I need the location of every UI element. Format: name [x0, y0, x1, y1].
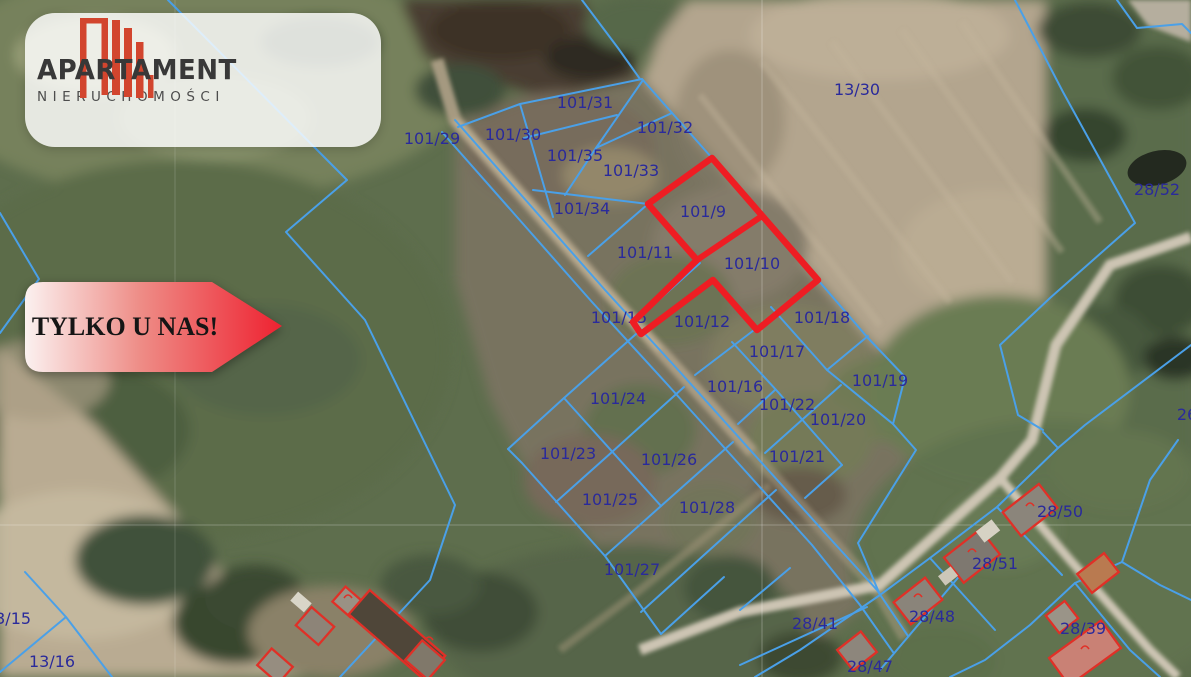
parcel-label: 101/28 — [679, 499, 735, 517]
parcel-label: 101/11 — [617, 244, 673, 262]
parcel-label: 28/51 — [972, 555, 1018, 573]
parcel-label: 101/25 — [582, 491, 638, 509]
parcel-label: 101/9 — [680, 203, 726, 221]
parcel-label: 101/29 — [404, 130, 460, 148]
parcel-label: 101/33 — [603, 162, 659, 180]
parcel-label: 101/24 — [590, 390, 646, 408]
ribbon-text: TYLKO U NAS! — [25, 282, 225, 372]
parcel-label: 101/26 — [641, 451, 697, 469]
parcel-label: 13/15 — [0, 610, 31, 628]
parcel-label: 101/20 — [810, 411, 866, 429]
parcel-label: 101/21 — [769, 448, 825, 466]
exclusive-ribbon: TYLKO U NAS! — [25, 282, 287, 372]
parcel-label: 13/16 — [29, 653, 75, 671]
parcel-label: 101/15 — [591, 309, 647, 327]
parcel-label: 101/22 — [759, 396, 815, 414]
parcel-label: 101/17 — [749, 343, 805, 361]
parcel-label: 101/31 — [557, 94, 613, 112]
parcel-label: 28/47 — [847, 658, 893, 676]
parcel-label: 101/27 — [604, 561, 660, 579]
parcel-label: 101/23 — [540, 445, 596, 463]
parcel-label: 28/52 — [1134, 181, 1180, 199]
parcel-label: 28/50 — [1037, 503, 1083, 521]
parcel-label: 101/35 — [547, 147, 603, 165]
parcel-label: 101/12 — [674, 313, 730, 331]
parcel-label: 101/18 — [794, 309, 850, 327]
parcel-label: 101/19 — [852, 372, 908, 390]
parcel-label: 28/41 — [792, 615, 838, 633]
parcel-label: 28/48 — [909, 608, 955, 626]
parcel-label: 26 — [1177, 406, 1191, 424]
brand-name: APARTAMENT — [37, 56, 237, 84]
parcel-label: 101/16 — [707, 378, 763, 396]
agency-logo: APARTAMENT NIERUCHOMOŚCI — [25, 13, 381, 147]
parcel-label: 13/30 — [834, 81, 880, 99]
parcel-label: 101/32 — [637, 119, 693, 137]
parcel-label: 101/10 — [724, 255, 780, 273]
parcel-label: 28/39 — [1060, 620, 1106, 638]
parcel-label: 101/34 — [554, 200, 610, 218]
parcel-label: 101/30 — [485, 126, 541, 144]
listing-map-image: 101/29101/30101/31101/32101/35101/33101/… — [0, 0, 1191, 677]
